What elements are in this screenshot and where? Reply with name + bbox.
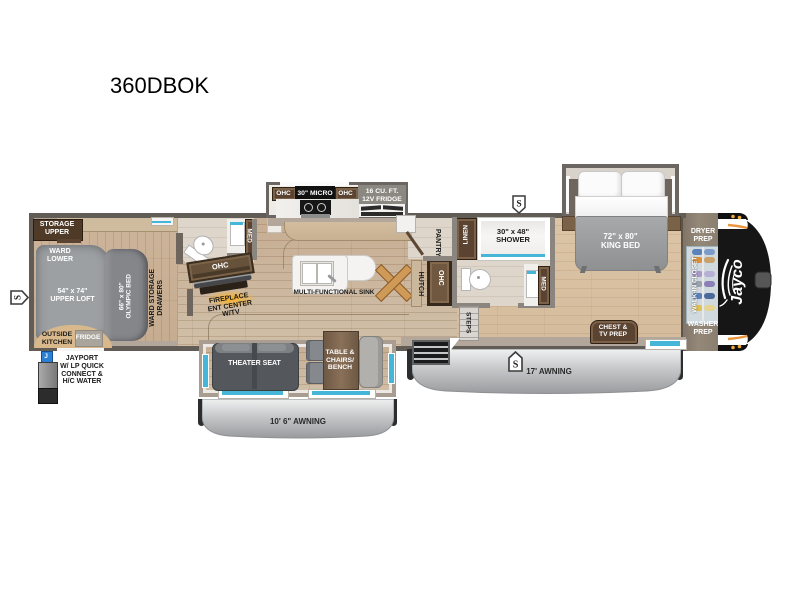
svg-text:S: S xyxy=(13,295,23,300)
svg-text:S: S xyxy=(516,200,521,210)
svg-text:S: S xyxy=(513,360,519,371)
